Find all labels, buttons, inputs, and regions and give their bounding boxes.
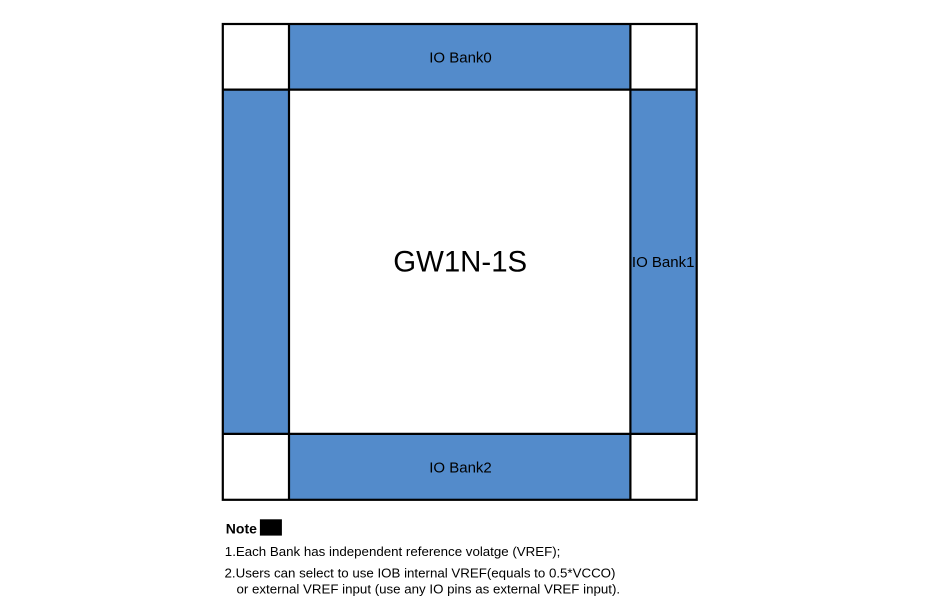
svg-text:1.Each Bank has independent re: 1.Each Bank has independent reference vo… xyxy=(225,544,561,559)
svg-text:IO Bank0: IO Bank0 xyxy=(429,49,492,66)
svg-text:Note: Note xyxy=(226,520,257,536)
svg-text:2.Users can select to use IOB: 2.Users can select to use IOB internal V… xyxy=(225,565,616,580)
svg-text:or external VREF input (use an: or external VREF input (use any IO pins … xyxy=(237,581,621,596)
svg-text:GW1N-1S: GW1N-1S xyxy=(393,246,527,279)
svg-text:IO Bank2: IO Bank2 xyxy=(429,460,492,477)
svg-text:IO Bank1: IO Bank1 xyxy=(632,254,695,271)
